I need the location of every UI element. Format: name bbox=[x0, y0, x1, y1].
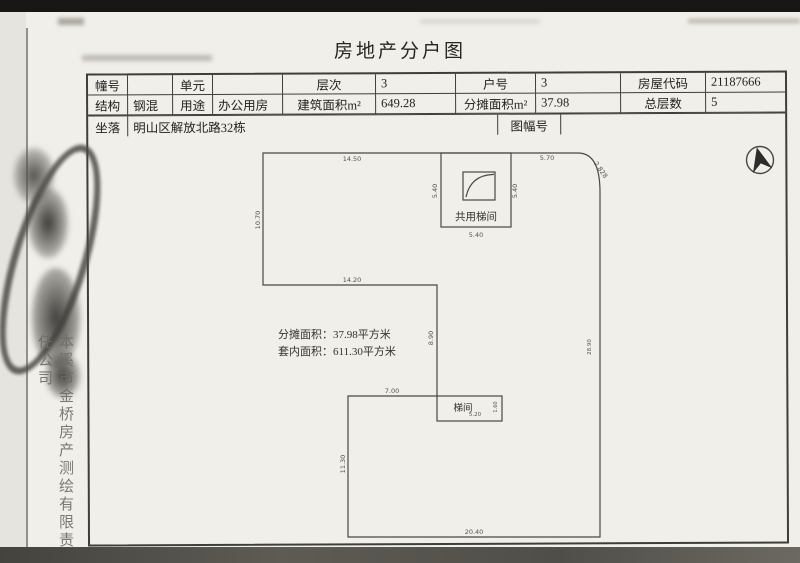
common-stairwell-label: 共用梯间 bbox=[455, 210, 497, 223]
share-area-annotation: 分摊面积：37.98平方米 bbox=[278, 327, 391, 341]
floor-plan-drawing: 14.50 5.70 2.828 10.70 14.20 8.90 28.90 … bbox=[0, 0, 800, 563]
dim-notch-bottom: 14.20 bbox=[343, 276, 362, 284]
dim-stair-bottom: 5.40 bbox=[469, 231, 483, 239]
dim-top-left: 14.50 bbox=[343, 155, 362, 163]
dim-bottom: 20.40 bbox=[465, 528, 484, 536]
surveying-company-name: 本溪市金桥房产测绘有限责任公司 bbox=[34, 334, 76, 563]
north-arrow-icon bbox=[747, 145, 774, 174]
dim-stair-left: 5.40 bbox=[431, 184, 439, 198]
dim-stairwell-height: 1.60 bbox=[493, 401, 499, 412]
stair-symbol-curve bbox=[466, 174, 494, 197]
dim-left-edge: 10.70 bbox=[254, 211, 262, 230]
dim-stair-right: 5.40 bbox=[511, 184, 519, 198]
dim-chamfer: 2.828 bbox=[592, 160, 609, 180]
dim-top-right: 5.70 bbox=[540, 154, 554, 162]
stair-symbol bbox=[463, 172, 495, 200]
dim-right-edge: 28.90 bbox=[587, 339, 593, 355]
stairwell-label: 梯间 bbox=[453, 402, 472, 414]
inner-area-annotation: 套内面积：611.30平方米 bbox=[278, 344, 396, 358]
dim-mid-vertical: 8.90 bbox=[427, 331, 435, 345]
dim-lower-top: 7.00 bbox=[385, 387, 399, 395]
dim-lower-left: 11.30 bbox=[339, 455, 347, 474]
scanned-document-page: 本溪市金桥房产测绘有限责任公司 房地产分户图 幢号 单元 层次 3 户号 3 房… bbox=[0, 0, 800, 563]
